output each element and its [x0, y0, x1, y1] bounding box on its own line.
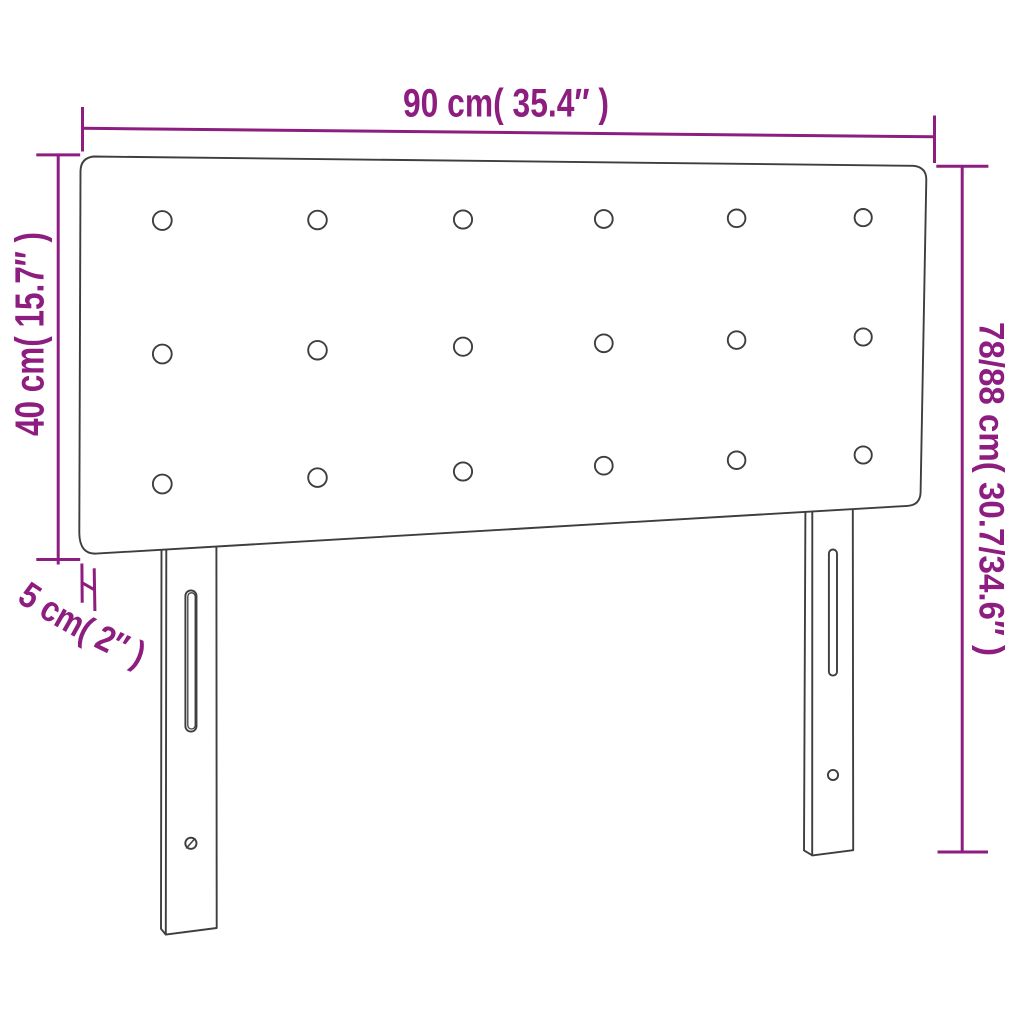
svg-text:78/88 cm( 30.7/34.6″ ): 78/88 cm( 30.7/34.6″ ) — [972, 322, 1011, 656]
svg-text:90 cm( 35.4″ ): 90 cm( 35.4″ ) — [403, 82, 609, 126]
svg-text:40 cm( 15.7″ ): 40 cm( 15.7″ ) — [7, 232, 53, 436]
